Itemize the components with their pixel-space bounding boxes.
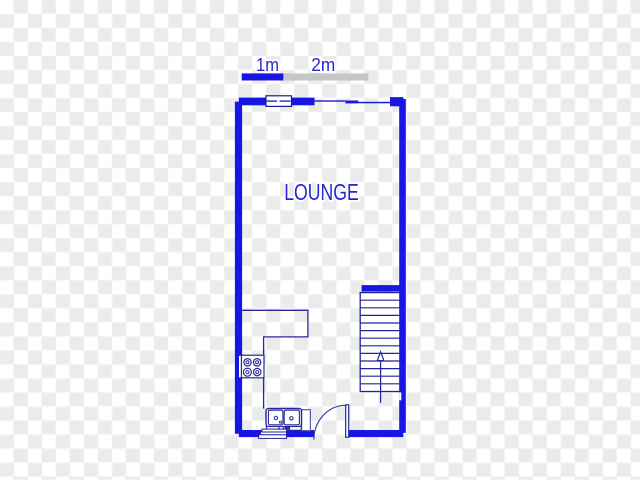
svg-text:1m: 1m [256,54,279,75]
svg-text:LOUNGE: LOUNGE [284,179,359,205]
svg-text:2m: 2m [311,54,335,75]
